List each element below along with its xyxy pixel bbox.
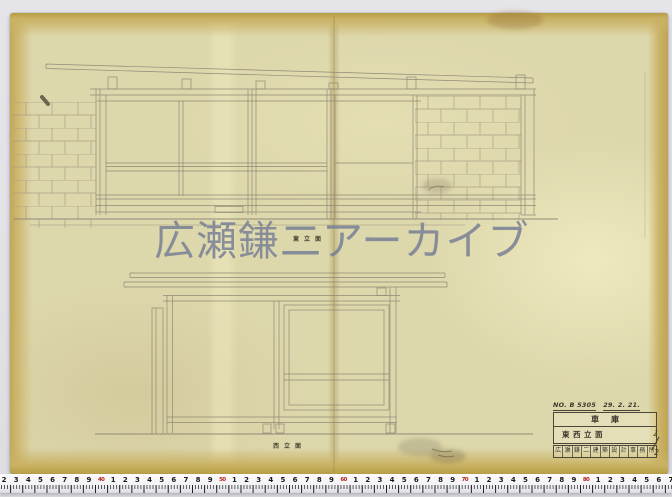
drawing-number-line: NO. B 5305 29. 2. 21. bbox=[553, 401, 657, 411]
archive-photo: { "photo": { "watermark": "広瀬鎌二アーカイブ" },… bbox=[0, 0, 672, 497]
scale-ticks bbox=[0, 485, 672, 493]
project-name: 車庫 bbox=[554, 413, 656, 427]
lower-elevation-drawing bbox=[95, 273, 533, 434]
archive-watermark: 広瀬鎌二アーカイブ bbox=[154, 219, 530, 263]
purlin-block bbox=[377, 288, 386, 296]
sheet-title: 東西立面 bbox=[554, 427, 656, 443]
panel-frame-inner bbox=[289, 310, 384, 405]
wall-stub bbox=[152, 308, 163, 434]
upper-elevation-drawing bbox=[13, 64, 645, 238]
drawing-number: NO. B 5305 bbox=[553, 401, 596, 411]
measuring-scale: 2345678940123456789501234567896012345678… bbox=[0, 474, 672, 493]
stain-top-edge bbox=[487, 11, 543, 29]
scale-digits: 2345678940123456789501234567896012345678… bbox=[0, 476, 672, 484]
brick-wall-left bbox=[13, 102, 96, 228]
lower-elevation-caption: 西立面 bbox=[273, 441, 306, 450]
purlin-blocks bbox=[108, 75, 525, 89]
posts bbox=[167, 287, 396, 433]
panel-frame-outer bbox=[284, 305, 389, 410]
vent bbox=[215, 207, 243, 213]
upper-elevation-caption: 東立面 bbox=[293, 234, 326, 243]
title-box: 車庫 東西立面 bbox=[553, 412, 657, 444]
roof-beams bbox=[124, 273, 447, 287]
bottom-rails bbox=[167, 417, 397, 423]
panel-rail bbox=[284, 374, 389, 380]
sheet-number-denominator: 2 bbox=[654, 448, 659, 457]
head-rail bbox=[163, 296, 400, 302]
title-block: NO. B 5305 29. 2. 21. 車庫 東西立面 広瀬鎌二建築設計事務… bbox=[553, 401, 657, 458]
drawing-date: 29. 2. 21. bbox=[603, 401, 640, 411]
brick-wall-right bbox=[415, 96, 521, 220]
roof-beam bbox=[46, 64, 533, 83]
office-stamp: 広瀬鎌二建築設計事務所 bbox=[553, 445, 657, 458]
transom bbox=[106, 163, 413, 171]
